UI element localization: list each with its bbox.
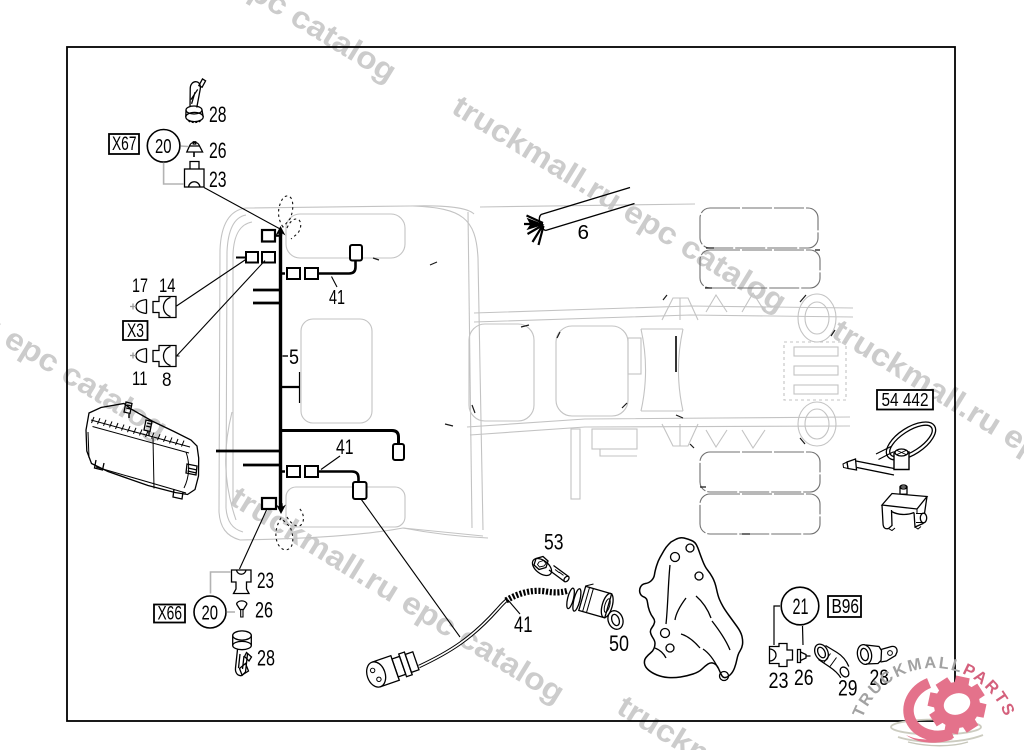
svg-text:X67: X67	[112, 133, 137, 155]
svg-text:50: 50	[609, 631, 629, 656]
svg-text:26: 26	[255, 598, 273, 623]
svg-text:41: 41	[514, 612, 533, 637]
svg-text:29: 29	[838, 676, 858, 701]
svg-text:54 442: 54 442	[882, 389, 929, 410]
svg-text:21: 21	[793, 594, 809, 619]
svg-text:11: 11	[132, 368, 148, 390]
svg-text:5: 5	[289, 346, 299, 369]
svg-text:41: 41	[329, 287, 345, 309]
svg-text:X3: X3	[127, 320, 144, 342]
svg-text:14: 14	[159, 275, 176, 297]
svg-text:41: 41	[336, 435, 354, 459]
svg-text:20: 20	[202, 603, 219, 625]
svg-text:28: 28	[209, 102, 227, 127]
svg-text:X66: X66	[158, 603, 183, 625]
svg-text:26: 26	[794, 665, 814, 690]
svg-text:28: 28	[257, 646, 275, 671]
svg-text:26: 26	[209, 138, 227, 163]
svg-text:20: 20	[155, 136, 172, 158]
svg-text:53: 53	[544, 530, 564, 555]
svg-text:8: 8	[162, 369, 172, 391]
svg-text:23: 23	[769, 668, 789, 693]
svg-text:23: 23	[209, 167, 227, 192]
svg-text:23: 23	[257, 568, 274, 593]
svg-text:17: 17	[132, 275, 148, 297]
svg-text:B96: B96	[832, 596, 860, 618]
svg-text:6: 6	[578, 221, 590, 244]
